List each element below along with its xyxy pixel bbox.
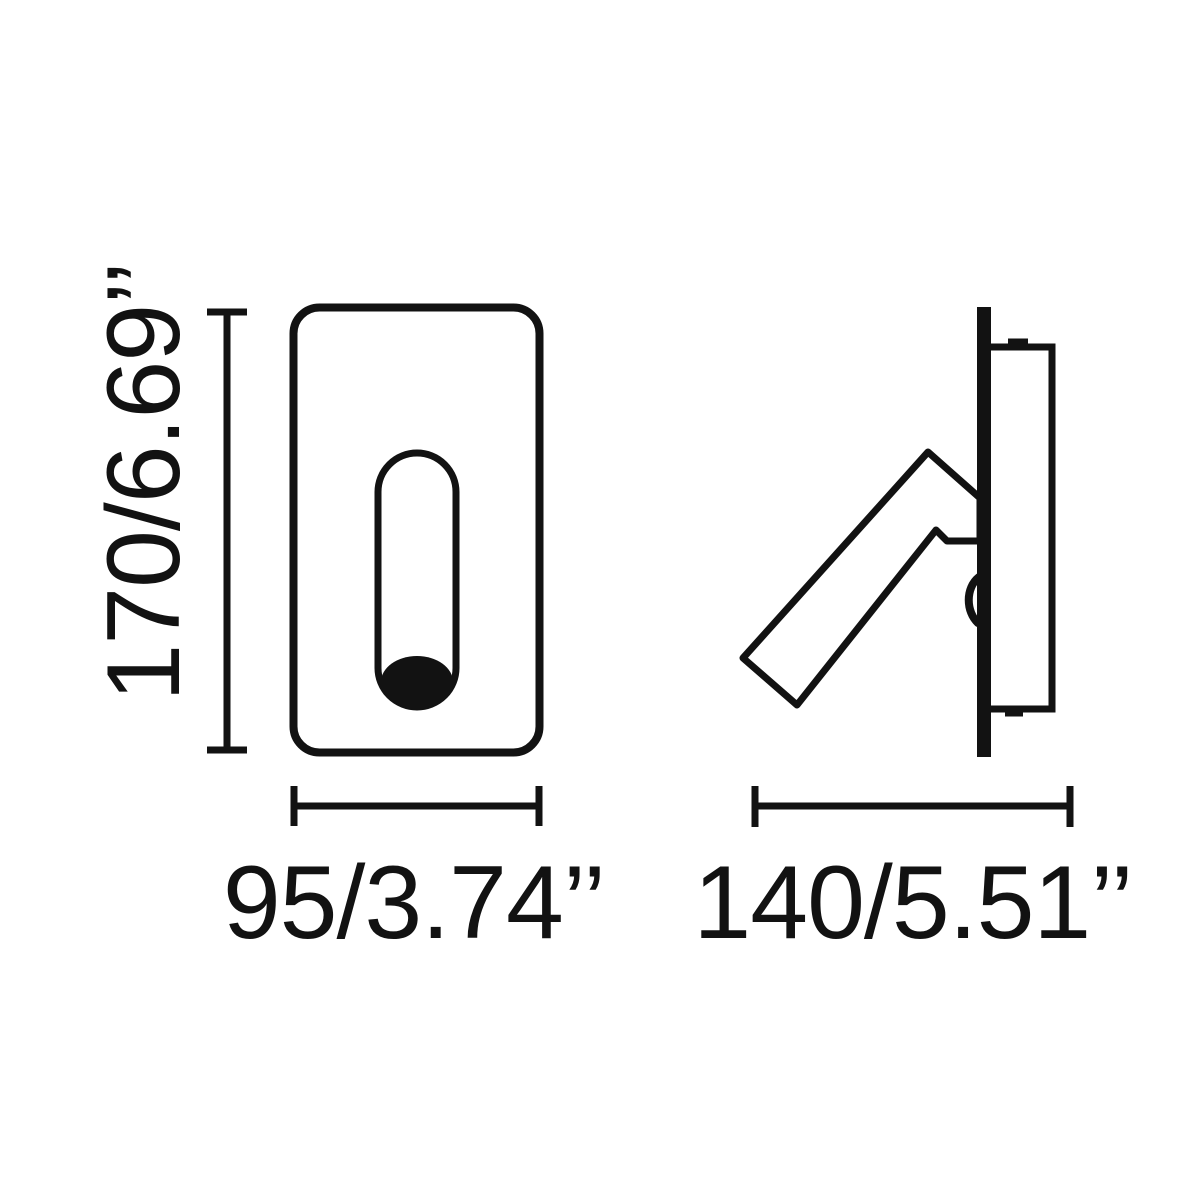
side-view	[743, 307, 1052, 757]
light-aperture	[381, 656, 453, 708]
dimension-drawing-page: 170/6.69’’ 95/3.74’’ 140/5.51’’	[0, 0, 1200, 1200]
front-view	[294, 308, 540, 753]
depth-dimension-line	[755, 786, 1070, 827]
depth-dimension-label: 140/5.51’’	[693, 851, 1132, 955]
height-dimension-label: 170/6.69’’	[92, 262, 196, 701]
height-dimension-line	[207, 312, 247, 750]
reading-light-tube	[743, 452, 980, 705]
width-dimension-line	[294, 786, 539, 826]
recessed-housing	[991, 347, 1052, 709]
width-dimension-label: 95/3.74’’	[223, 851, 605, 955]
